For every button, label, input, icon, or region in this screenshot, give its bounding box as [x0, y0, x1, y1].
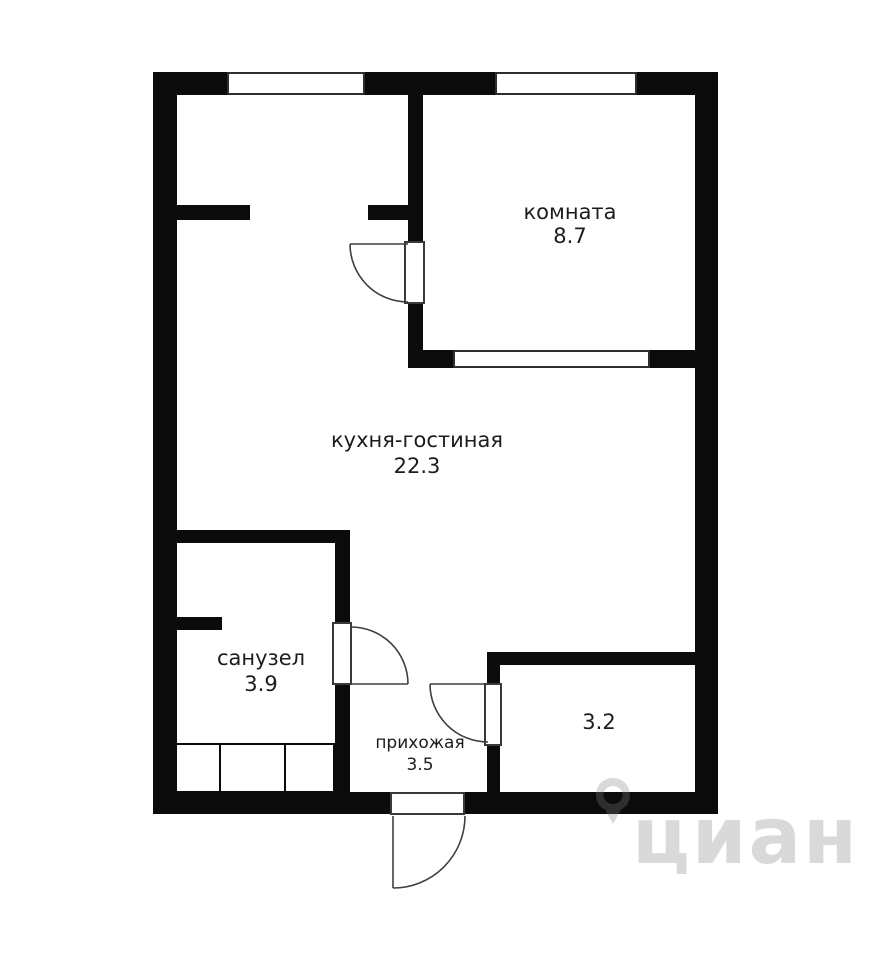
bathroom-fixture-3 — [284, 743, 335, 793]
location-pin-icon — [594, 776, 632, 846]
window-top-left — [227, 72, 365, 95]
door-swing-bedroom — [350, 244, 408, 302]
window-top-right — [495, 72, 637, 95]
window-bedroom-inner — [453, 350, 650, 368]
door-panel-entrance — [390, 792, 465, 815]
door-panel-storage — [484, 683, 502, 746]
door-panel-bedroom — [404, 241, 425, 304]
door-panel-bathroom — [332, 622, 352, 685]
watermark-brand: циан — [632, 792, 859, 882]
room-area-bedroom: 8.7 — [553, 224, 586, 248]
room-label-bathroom: санузел — [217, 646, 305, 670]
room-label-kitchen-living: кухня-гостиная — [331, 428, 503, 452]
room-label-bedroom: комната — [523, 200, 616, 224]
room-area-storage: 3.2 — [582, 710, 615, 734]
room-area-hallway: 3.5 — [406, 755, 433, 775]
wall-outer-left — [153, 72, 177, 814]
room-area-kitchen-living: 22.3 — [394, 454, 441, 478]
wall-stub-bathroom — [155, 617, 222, 630]
wall-outer-right — [695, 72, 718, 814]
room-area-bathroom: 3.9 — [244, 672, 277, 696]
door-swing-entrance — [393, 816, 465, 888]
wall-storage-top — [487, 652, 695, 665]
door-swing-bathroom — [351, 627, 408, 684]
wall-bedroom-left — [408, 93, 423, 350]
bathroom-fixture-2 — [219, 743, 286, 793]
wall-stub-kitchen-right — [368, 205, 408, 220]
wall-stub-kitchen-left — [155, 205, 250, 220]
bathroom-fixture-1 — [175, 743, 221, 793]
room-label-hallway: прихожая — [375, 733, 464, 753]
wall-bathroom-top — [155, 530, 350, 543]
floor-plan: комната 8.7 кухня-гостиная 22.3 санузел … — [0, 0, 873, 960]
